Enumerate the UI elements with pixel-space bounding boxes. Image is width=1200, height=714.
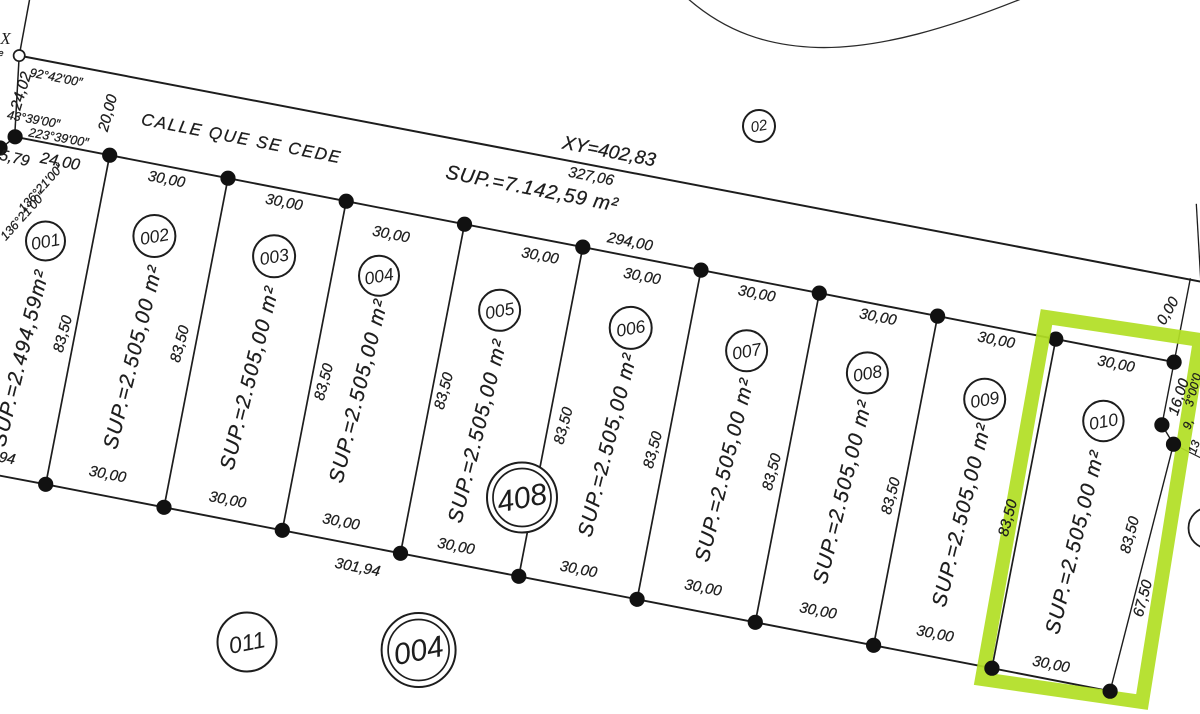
- svg-text:e: e: [0, 48, 4, 58]
- svg-text:X: X: [0, 29, 11, 48]
